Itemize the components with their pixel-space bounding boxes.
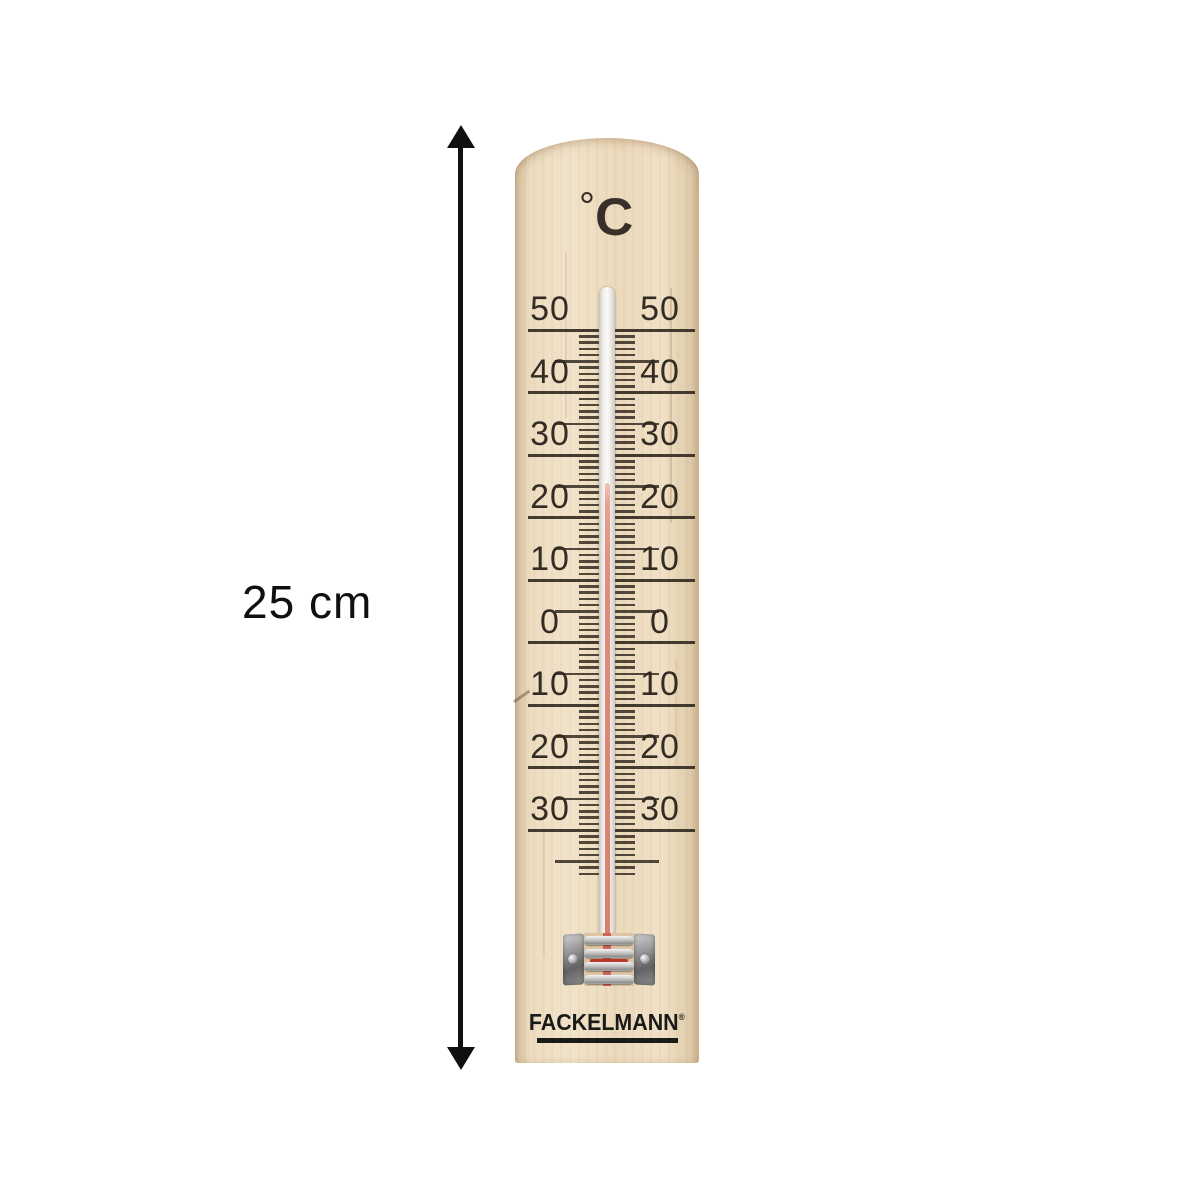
scale-minor-tick-left <box>579 623 599 626</box>
scale-minor-tick-right <box>615 816 635 819</box>
scale-minor-tick-right <box>615 341 635 344</box>
scale-major-line-right <box>615 329 695 332</box>
scale-minor-tick-left <box>579 404 599 407</box>
scale-minor-tick-left <box>579 491 599 494</box>
scale-label-left: 50 <box>520 292 580 326</box>
scale-minor-tick-right <box>615 504 635 507</box>
scale-medium-tick-right <box>615 548 659 551</box>
scale-minor-tick-right <box>615 685 635 688</box>
scale-minor-tick-right <box>615 654 635 657</box>
scale-minor-tick-left <box>579 748 599 751</box>
scale-minor-tick-left <box>579 791 599 794</box>
scale-minor-tick-right <box>615 560 635 563</box>
brand-underline <box>537 1038 678 1043</box>
scale-minor-tick-left <box>579 554 599 557</box>
scale-minor-tick-left <box>579 591 599 594</box>
scale-minor-tick-left <box>579 691 599 694</box>
scale-major-line-right <box>615 454 695 457</box>
scale-minor-tick-right <box>615 773 635 776</box>
scale-minor-tick-left <box>579 348 599 351</box>
scale-minor-tick-right <box>615 448 635 451</box>
scale-minor-tick-right <box>615 435 635 438</box>
scale-minor-tick-right <box>615 723 635 726</box>
scale-minor-tick-left <box>579 573 599 576</box>
scale-minor-tick-left <box>579 398 599 401</box>
arrow-down-icon <box>447 1047 475 1070</box>
scale-major-line-left <box>528 829 599 832</box>
scale-minor-tick-left <box>579 710 599 713</box>
thermometer-body: ° C 5050404030302020101000101020203030 F… <box>515 138 699 1063</box>
scale-minor-tick-left <box>579 448 599 451</box>
scale-minor-tick-left <box>579 629 599 632</box>
scale-minor-tick-left <box>579 666 599 669</box>
scale-minor-tick-right <box>615 791 635 794</box>
scale-minor-tick-left <box>579 679 599 682</box>
scale-minor-tick-left <box>579 760 599 763</box>
scale-minor-tick-left <box>579 810 599 813</box>
scale-minor-tick-right <box>615 335 635 338</box>
scale-minor-tick-right <box>615 823 635 826</box>
scale-minor-tick-right <box>615 660 635 663</box>
scale-minor-tick-left <box>579 723 599 726</box>
scale-minor-tick-left <box>579 773 599 776</box>
scale-minor-tick-right <box>615 748 635 751</box>
scale-minor-tick-left <box>579 373 599 376</box>
liquid-column <box>605 483 610 935</box>
registered-mark: ® <box>679 1012 685 1022</box>
scale-minor-tick-right <box>615 804 635 807</box>
scale-minor-tick-left <box>579 429 599 432</box>
scale-minor-tick-left <box>579 504 599 507</box>
bracket-band <box>584 962 634 971</box>
scale-minor-tick-left <box>579 835 599 838</box>
scale-medium-tick-left <box>555 610 599 613</box>
scale-minor-tick-right <box>615 473 635 476</box>
scale-minor-tick-right <box>615 666 635 669</box>
scale-minor-tick-left <box>579 741 599 744</box>
scale-major-line-left <box>528 766 599 769</box>
scale-minor-tick-right <box>615 604 635 607</box>
scale-minor-tick-right <box>615 479 635 482</box>
scale-major-line-left <box>528 329 599 332</box>
scale-medium-tick-left <box>555 798 599 801</box>
scale-minor-tick-left <box>579 604 599 607</box>
scale-medium-tick-left <box>555 673 599 676</box>
scale-major-line-right <box>615 579 695 582</box>
bracket-plate-right <box>634 933 655 985</box>
scale-minor-tick-right <box>615 710 635 713</box>
scale-minor-tick-right <box>615 873 635 876</box>
scale-medium-tick-left <box>555 860 599 863</box>
scale-minor-tick-left <box>579 523 599 526</box>
scale-minor-tick-left <box>579 616 599 619</box>
scale-major-line-right <box>615 516 695 519</box>
scale-medium-tick-right <box>615 485 659 488</box>
scale-minor-tick-left <box>579 385 599 388</box>
scale-minor-tick-right <box>615 591 635 594</box>
scale-minor-tick-right <box>615 585 635 588</box>
bracket-band <box>584 949 634 958</box>
scale-minor-tick-right <box>615 535 635 538</box>
scale-minor-tick-right <box>615 698 635 701</box>
scale-minor-tick-left <box>579 823 599 826</box>
scale-minor-tick-left <box>579 541 599 544</box>
scale-medium-tick-right <box>615 798 659 801</box>
scale-minor-tick-right <box>615 854 635 857</box>
scale-minor-tick-right <box>615 566 635 569</box>
scale-minor-tick-left <box>579 341 599 344</box>
scale-minor-tick-left <box>579 479 599 482</box>
scale-minor-tick-right <box>615 785 635 788</box>
scale-minor-tick-left <box>579 635 599 638</box>
scale-minor-tick-right <box>615 385 635 388</box>
scale-minor-tick-right <box>615 523 635 526</box>
scale-minor-tick-right <box>615 754 635 757</box>
scale-minor-tick-right <box>615 691 635 694</box>
scale-minor-tick-right <box>615 760 635 763</box>
scale-minor-tick-right <box>615 354 635 357</box>
scale-minor-tick-right <box>615 729 635 732</box>
scale-minor-tick-left <box>579 648 599 651</box>
scale-minor-tick-left <box>579 354 599 357</box>
bulb-bracket <box>563 933 655 986</box>
scale-medium-tick-left <box>555 360 599 363</box>
arrow-up-icon <box>447 125 475 148</box>
scale-minor-tick-left <box>579 585 599 588</box>
scale-major-line-left <box>528 516 599 519</box>
scale-minor-tick-left <box>579 804 599 807</box>
screw-icon <box>568 954 578 965</box>
scale-minor-tick-left <box>579 866 599 869</box>
scale-minor-tick-left <box>579 441 599 444</box>
scale-minor-tick-right <box>615 498 635 501</box>
scale-minor-tick-left <box>579 473 599 476</box>
scale-medium-tick-right <box>615 423 659 426</box>
scale-minor-tick-left <box>579 510 599 513</box>
scale-major-line-right <box>615 829 695 832</box>
scale-minor-tick-right <box>615 716 635 719</box>
scale-minor-tick-right <box>615 541 635 544</box>
scale-minor-tick-right <box>615 779 635 782</box>
scale-minor-tick-left <box>579 841 599 844</box>
scale-minor-tick-right <box>615 623 635 626</box>
scale-major-line-right <box>615 766 695 769</box>
scale-minor-tick-right <box>615 679 635 682</box>
scale-minor-tick-right <box>615 629 635 632</box>
scale-minor-tick-left <box>579 335 599 338</box>
scale-major-line-right <box>615 641 695 644</box>
scale-minor-tick-left <box>579 535 599 538</box>
scale-minor-tick-right <box>615 835 635 838</box>
scale-minor-tick-right <box>615 348 635 351</box>
scale-minor-tick-right <box>615 460 635 463</box>
bracket-band <box>584 975 634 984</box>
scale-minor-tick-left <box>579 698 599 701</box>
bracket-center <box>584 933 634 986</box>
scale-minor-tick-right <box>615 841 635 844</box>
scale-minor-tick-left <box>579 848 599 851</box>
dimension-label: 25 cm <box>242 575 372 629</box>
scale-minor-tick-right <box>615 404 635 407</box>
scale-minor-tick-right <box>615 741 635 744</box>
brand-name: FACKELMANN® <box>529 1006 685 1034</box>
scale-minor-tick-left <box>579 598 599 601</box>
scale-minor-tick-right <box>615 466 635 469</box>
scale-minor-tick-right <box>615 398 635 401</box>
scale-minor-tick-right <box>615 648 635 651</box>
scale-medium-tick-right <box>615 735 659 738</box>
scale-minor-tick-left <box>579 460 599 463</box>
scale-minor-tick-right <box>615 554 635 557</box>
scale-minor-tick-right <box>615 635 635 638</box>
scale-medium-tick-right <box>615 610 659 613</box>
scale-minor-tick-left <box>579 854 599 857</box>
scale-minor-tick-left <box>579 716 599 719</box>
scale-minor-tick-right <box>615 510 635 513</box>
scale-minor-tick-left <box>579 785 599 788</box>
scale-minor-tick-right <box>615 866 635 869</box>
scale-minor-tick-left <box>579 435 599 438</box>
scale-major-line-left <box>528 579 599 582</box>
scale-minor-tick-right <box>615 598 635 601</box>
scale-minor-tick-right <box>615 366 635 369</box>
scale-minor-tick-right <box>615 373 635 376</box>
brand-logo: FACKELMANN® <box>515 1006 699 1043</box>
scale-major-line-left <box>528 704 599 707</box>
scale-medium-tick-left <box>555 485 599 488</box>
scale-medium-tick-left <box>555 548 599 551</box>
scale-major-line-right <box>615 704 695 707</box>
scale-minor-tick-left <box>579 416 599 419</box>
scale-minor-tick-right <box>615 848 635 851</box>
scale-minor-tick-left <box>579 366 599 369</box>
scale-minor-tick-left <box>579 379 599 382</box>
scale-medium-tick-right <box>615 673 659 676</box>
scale-minor-tick-left <box>579 560 599 563</box>
scale-minor-tick-left <box>579 654 599 657</box>
scale-major-line-left <box>528 641 599 644</box>
scale-minor-tick-right <box>615 529 635 532</box>
scale-minor-tick-right <box>615 441 635 444</box>
screw-icon <box>640 954 650 965</box>
scale-medium-tick-left <box>555 735 599 738</box>
scale-minor-tick-right <box>615 616 635 619</box>
scale-major-line-left <box>528 391 599 394</box>
scale-minor-tick-left <box>579 660 599 663</box>
scale-minor-tick-left <box>579 466 599 469</box>
scale-minor-tick-left <box>579 685 599 688</box>
capillary-tube <box>599 287 615 935</box>
scale-medium-tick-right <box>615 860 659 863</box>
dimension-arrow <box>458 141 463 1052</box>
scale-minor-tick-left <box>579 566 599 569</box>
scale-minor-tick-right <box>615 416 635 419</box>
scale-major-line-right <box>615 391 695 394</box>
scale-minor-tick-left <box>579 779 599 782</box>
scale-minor-tick-left <box>579 498 599 501</box>
scale-medium-tick-right <box>615 360 659 363</box>
scale-minor-tick-right <box>615 379 635 382</box>
scale-minor-tick-right <box>615 573 635 576</box>
scale-major-line-left <box>528 454 599 457</box>
scale-minor-tick-left <box>579 754 599 757</box>
scale-minor-tick-left <box>579 816 599 819</box>
scale-minor-tick-left <box>579 529 599 532</box>
scale-minor-tick-right <box>615 810 635 813</box>
bracket-band <box>584 936 634 945</box>
scale-label-right: 50 <box>630 292 690 326</box>
scale-minor-tick-right <box>615 429 635 432</box>
scale-minor-tick-left <box>579 410 599 413</box>
bracket-plate-left <box>563 933 584 985</box>
scale-minor-tick-right <box>615 491 635 494</box>
scale-minor-tick-left <box>579 729 599 732</box>
scale-medium-tick-left <box>555 423 599 426</box>
scale-minor-tick-right <box>615 410 635 413</box>
scale-minor-tick-left <box>579 873 599 876</box>
